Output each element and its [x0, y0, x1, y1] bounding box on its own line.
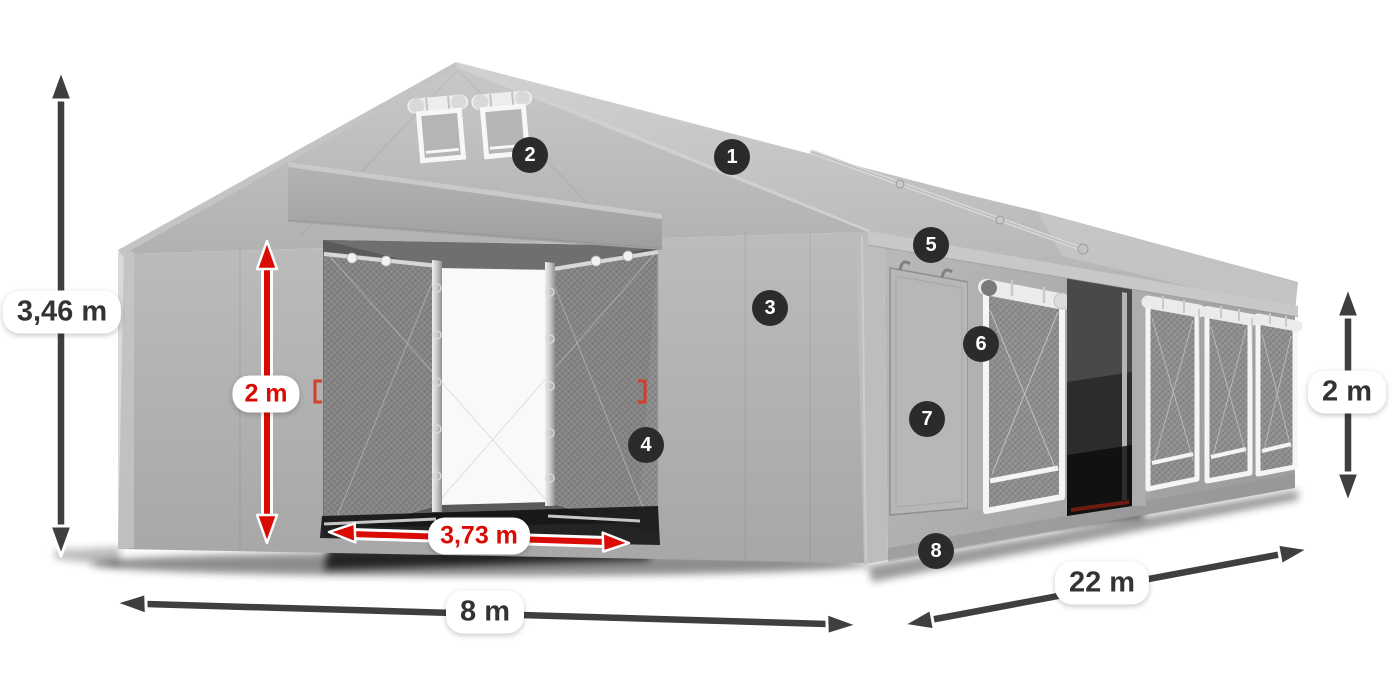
side-window-3 [1207, 306, 1252, 481]
tent-illustration [0, 0, 1400, 700]
feature-badge-8: 8 [918, 533, 954, 569]
tent-dimension-diagram: 3,46 m 2 m 3,73 m 8 m 22 m 2 m 1 2 3 4 5… [0, 0, 1400, 700]
side-window-1 [981, 280, 1070, 511]
feature-badge-1: 1 [714, 139, 750, 175]
feature-badge-4: 4 [628, 427, 664, 463]
feature-badge-5: 5 [913, 227, 949, 263]
feature-badge-7: 7 [909, 401, 945, 437]
feature-badge-3: 3 [752, 290, 788, 326]
side-window-4 [1258, 313, 1297, 474]
side-opening-gap [1067, 276, 1132, 516]
side-height-label: 2 m [1308, 371, 1386, 414]
entrance-opening [315, 240, 660, 545]
side-door [890, 262, 968, 515]
entrance-width-label: 3,73 m [428, 518, 530, 555]
feature-badge-2: 2 [512, 137, 548, 173]
side-window-2 [1148, 296, 1199, 489]
entrance-height-label: 2 m [232, 376, 299, 413]
total-height-label: 3,46 m [3, 291, 121, 334]
front-width-label: 8 m [446, 591, 524, 634]
side-length-label: 22 m [1055, 562, 1149, 605]
feature-badge-6: 6 [963, 326, 999, 362]
